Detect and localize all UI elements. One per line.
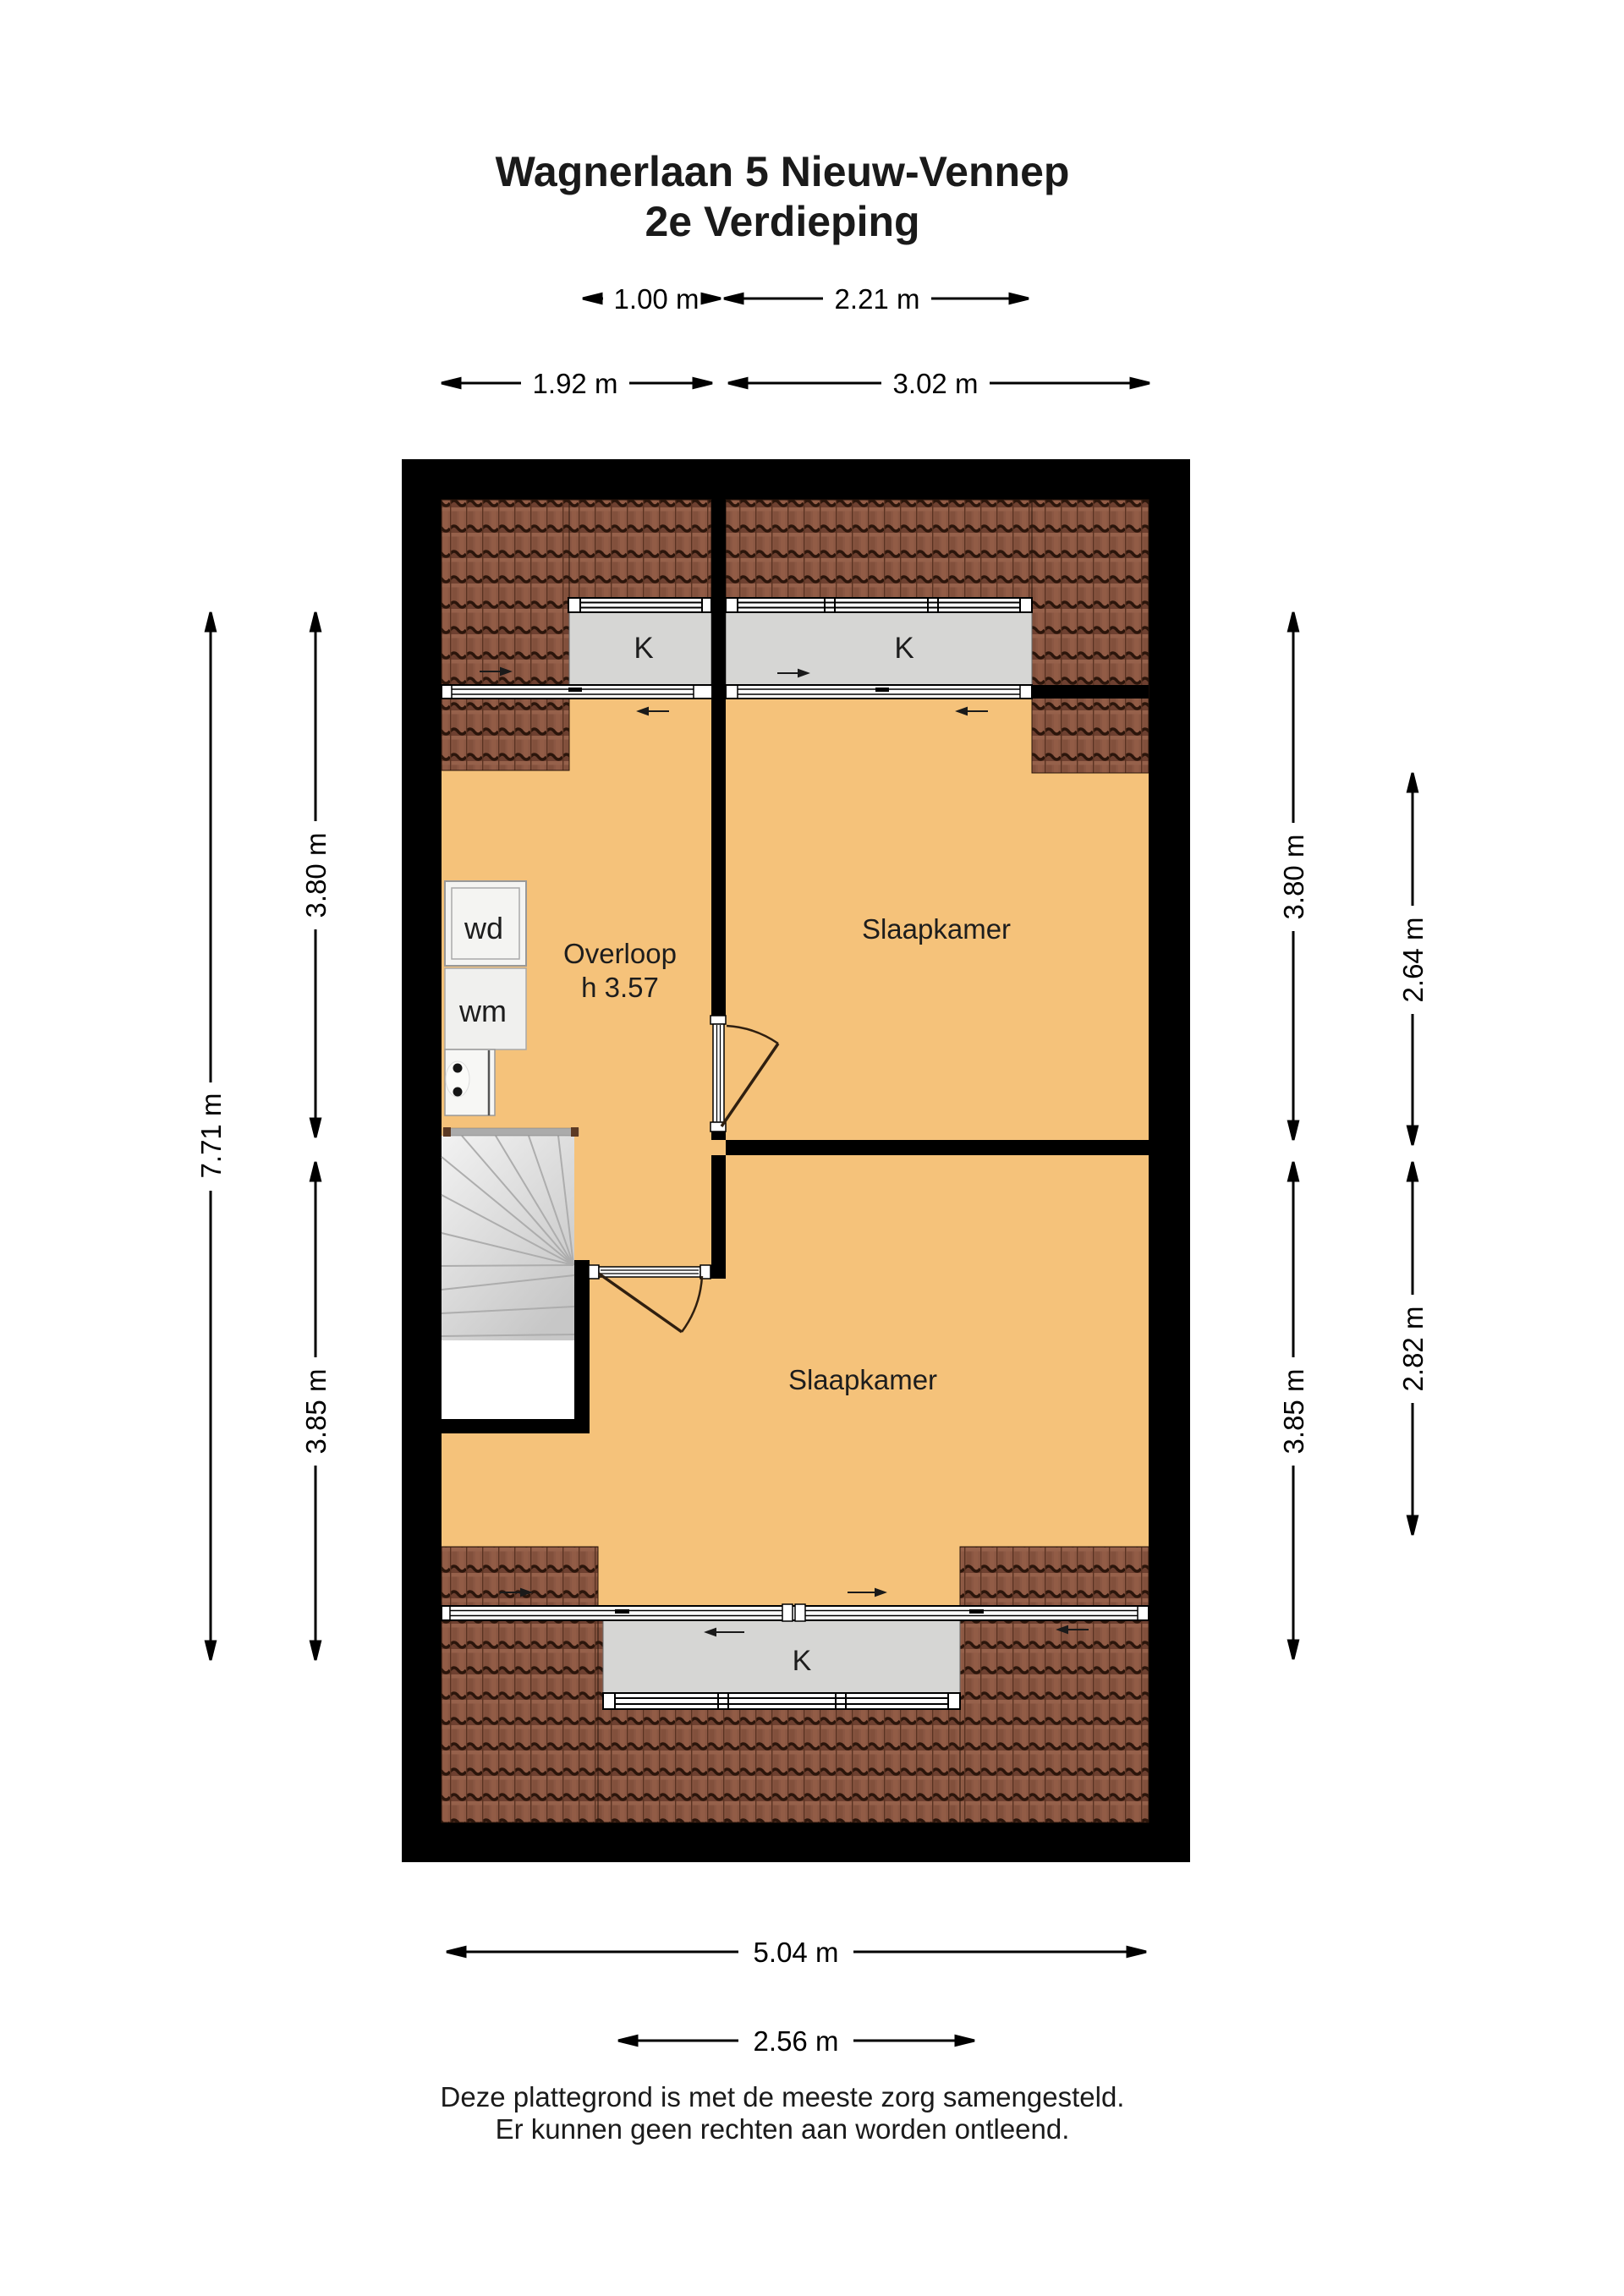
- svg-text:Deze plattegrond is met de mee: Deze plattegrond is met de meeste zorg s…: [441, 2081, 1125, 2112]
- svg-text:Er kunnen geen rechten aan wor: Er kunnen geen rechten aan worden ontlee…: [496, 2113, 1070, 2145]
- svg-text:Wagnerlaan 5 Nieuw-Vennep: Wagnerlaan 5 Nieuw-Vennep: [496, 148, 1070, 195]
- svg-text:Slaapkamer: Slaapkamer: [862, 913, 1011, 945]
- svg-text:2e Verdieping: 2e Verdieping: [645, 198, 919, 245]
- svg-text:2.64 m: 2.64 m: [1397, 918, 1429, 1003]
- svg-text:2.82 m: 2.82 m: [1397, 1307, 1429, 1392]
- svg-text:5.04 m: 5.04 m: [754, 1937, 839, 1968]
- svg-text:K: K: [894, 632, 913, 665]
- svg-text:K: K: [793, 1645, 812, 1677]
- svg-text:3.02 m: 3.02 m: [893, 368, 979, 399]
- svg-text:3.85 m: 3.85 m: [1278, 1369, 1309, 1455]
- svg-text:K: K: [634, 632, 653, 665]
- svg-text:wm: wm: [458, 994, 507, 1028]
- svg-text:2.56 m: 2.56 m: [754, 2025, 839, 2057]
- svg-text:2.21 m: 2.21 m: [835, 283, 920, 315]
- svg-text:Overloop: Overloop: [563, 938, 677, 969]
- svg-text:1.92 m: 1.92 m: [533, 368, 618, 399]
- svg-text:7.71 m: 7.71 m: [195, 1093, 227, 1179]
- svg-text:3.80 m: 3.80 m: [1278, 835, 1309, 920]
- svg-text:3.85 m: 3.85 m: [300, 1369, 332, 1455]
- svg-text:wd: wd: [464, 911, 503, 945]
- svg-text:3.80 m: 3.80 m: [300, 833, 332, 918]
- svg-text:1.00 m: 1.00 m: [614, 283, 700, 315]
- svg-text:h 3.57: h 3.57: [581, 972, 659, 1003]
- svg-text:Slaapkamer: Slaapkamer: [788, 1364, 937, 1395]
